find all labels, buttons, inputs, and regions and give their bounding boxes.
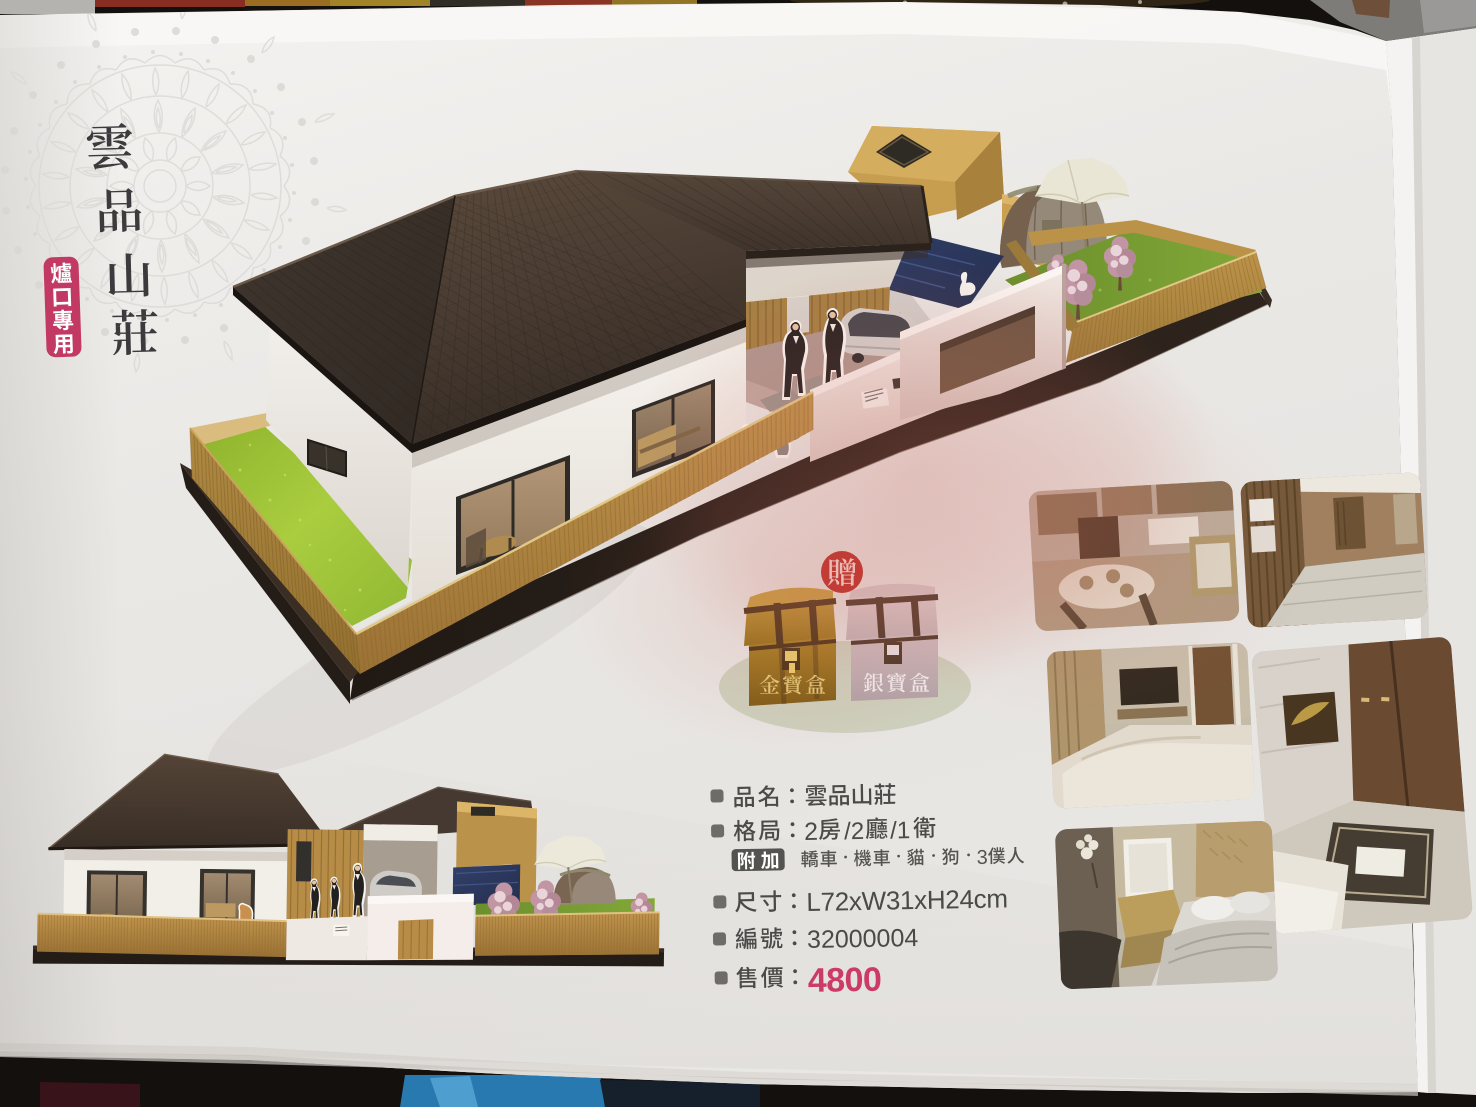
svg-text:32000004: 32000004 bbox=[807, 924, 919, 954]
svg-text:/1: /1 bbox=[890, 817, 910, 844]
svg-text:L72xW31xH24cm: L72xW31xH24cm bbox=[806, 883, 1008, 917]
svg-text:3: 3 bbox=[976, 847, 988, 869]
svg-text:/2: /2 bbox=[844, 818, 864, 845]
svg-text:4800: 4800 bbox=[807, 961, 881, 1000]
svg-text:2: 2 bbox=[804, 818, 818, 846]
